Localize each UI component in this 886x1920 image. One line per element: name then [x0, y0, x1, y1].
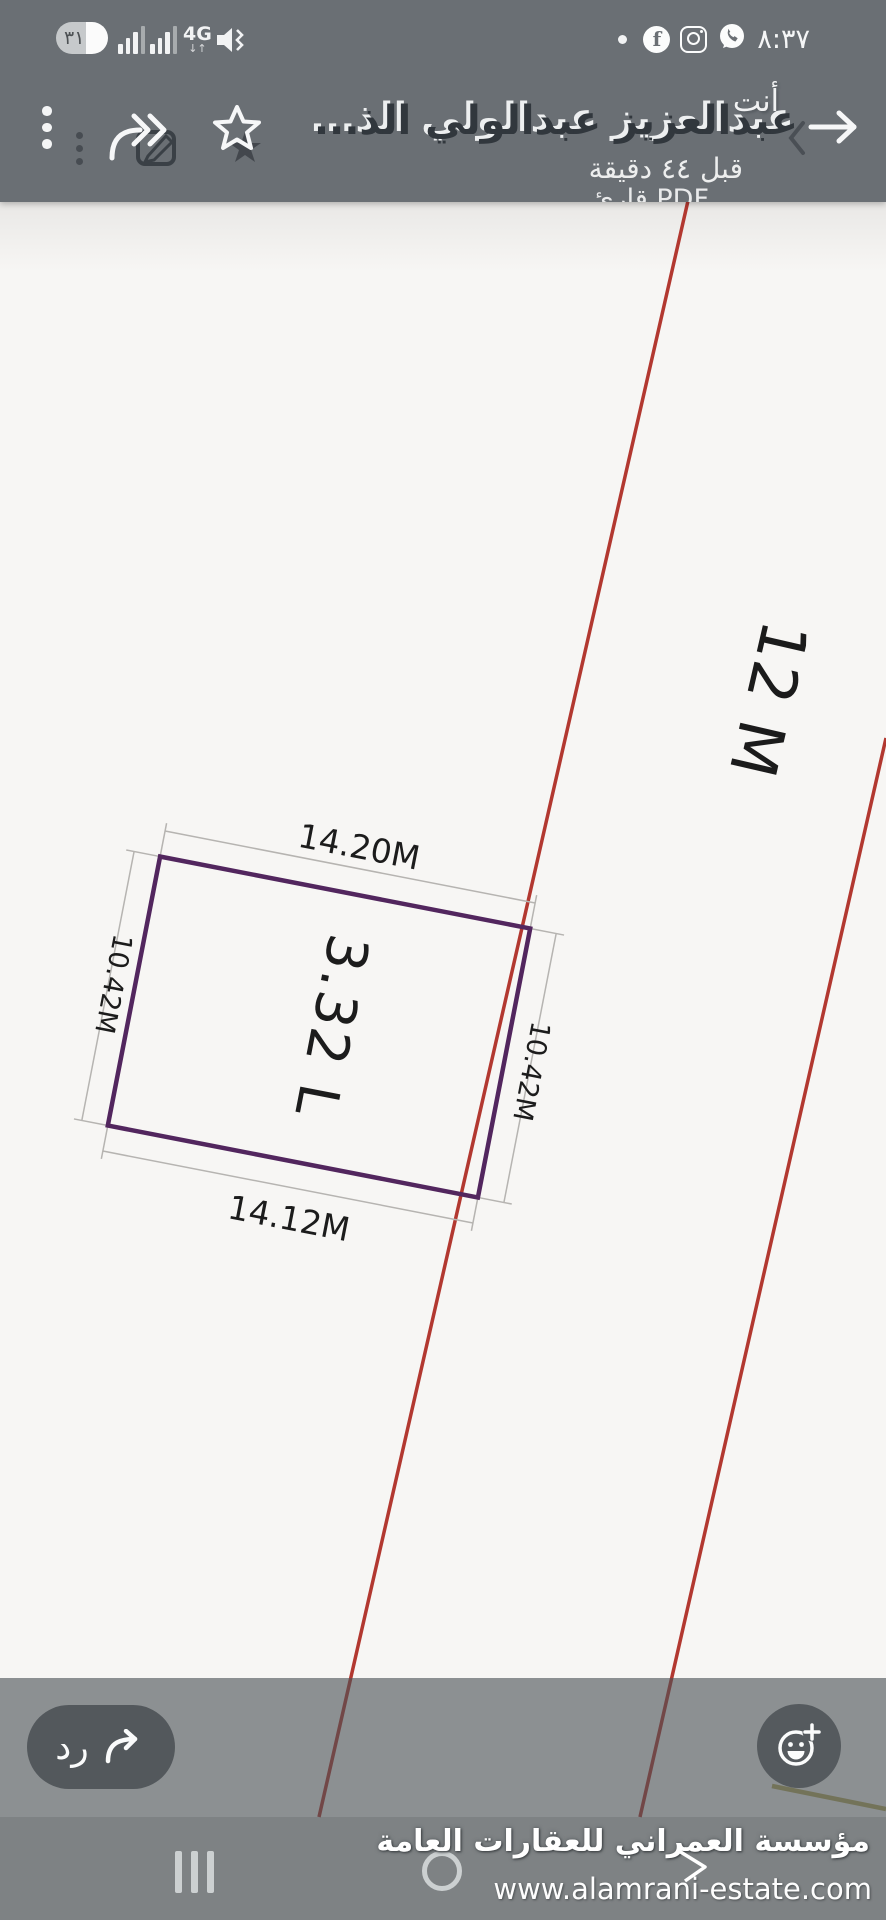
more-options-icon[interactable]: [42, 106, 52, 149]
watermark-logo-mark: [676, 1848, 710, 1888]
facebook-icon: f: [643, 26, 670, 53]
reply-button[interactable]: رد: [27, 1705, 175, 1789]
media-viewer-header: ٣١ 4G ↓↑ f: [0, 0, 886, 202]
network-type-label: 4G: [183, 26, 212, 43]
status-bar: ٣١ 4G ↓↑ f: [0, 0, 886, 62]
watermark-company: مؤسسة العمراني للعقارات العامة: [376, 1824, 870, 1859]
mute-vibrate-icon: [215, 24, 247, 60]
notification-dot-icon: [618, 35, 627, 44]
more-options-ghost-icon: [76, 132, 83, 165]
back-arrow-icon[interactable]: [808, 110, 860, 148]
road-width-label: 12 M: [714, 614, 821, 784]
forward-edit-icon[interactable]: [106, 104, 184, 176]
clock: ٨:٣٧: [757, 24, 810, 55]
battery-icon: ٣١: [56, 22, 108, 54]
add-reaction-icon: [774, 1721, 824, 1771]
add-reaction-button[interactable]: [757, 1704, 841, 1788]
signal-icon: [118, 26, 145, 54]
road-line-right: [640, 738, 886, 1817]
media-footer-overlay: رد: [0, 1678, 886, 1817]
plot-area-label: 3.32 L: [281, 929, 380, 1124]
reply-label: رد: [55, 1727, 88, 1768]
whatsapp-icon: [717, 22, 747, 56]
contact-name[interactable]: عبدالعزيز عبدالولي الذ...: [314, 98, 798, 144]
message-timestamp: قبل ٤٤ دقيقة: [589, 152, 743, 185]
document-type-label: قارئ PDF: [593, 184, 710, 202]
nav-recents-button[interactable]: [175, 1851, 214, 1893]
star-icon[interactable]: [210, 104, 270, 174]
dimension-label-right: 10.42M: [506, 1019, 556, 1124]
road-line-left: [319, 192, 690, 1817]
signal-icon-2: [150, 26, 177, 54]
plot-diagram: 12 M 14.20M 14.12M 10.42M 10.42M 3.32 L: [0, 0, 886, 1920]
plot-group: 14.20M 14.12M 10.42M 10.42M 3.32 L: [57, 784, 586, 1281]
chevron-ghost-icon: [788, 120, 806, 160]
network-type-indicator: 4G ↓↑: [183, 26, 212, 54]
instagram-icon: [680, 26, 707, 53]
battery-percent: ٣١: [64, 27, 90, 49]
reply-arrow-icon: [103, 1729, 147, 1765]
